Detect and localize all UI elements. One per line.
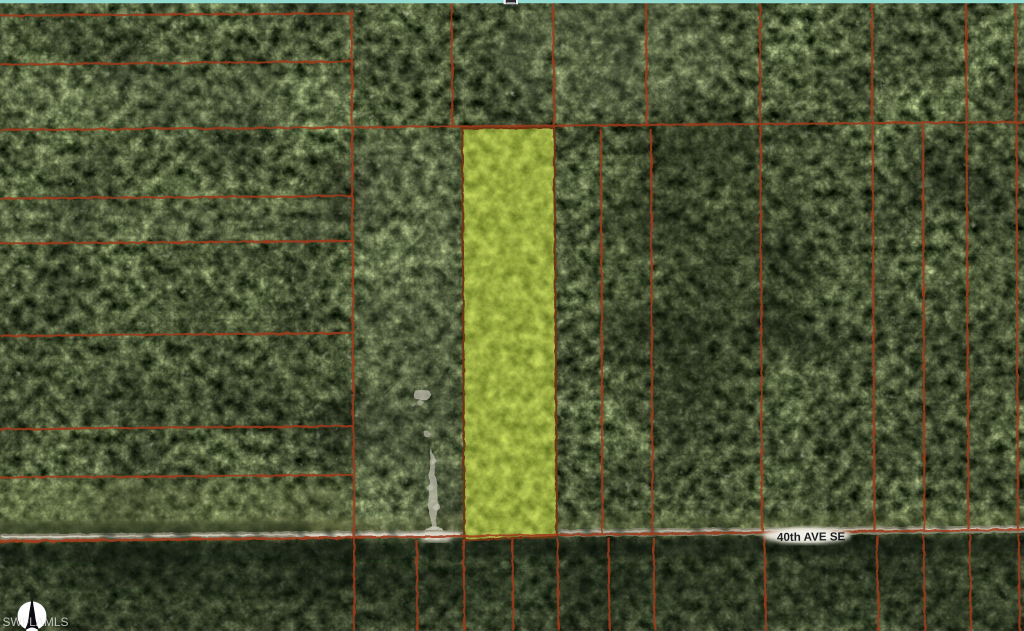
- svg-text:40th AVE SE: 40th AVE SE: [777, 530, 846, 544]
- svg-text:SWFLAMLS: SWFLAMLS: [3, 615, 69, 629]
